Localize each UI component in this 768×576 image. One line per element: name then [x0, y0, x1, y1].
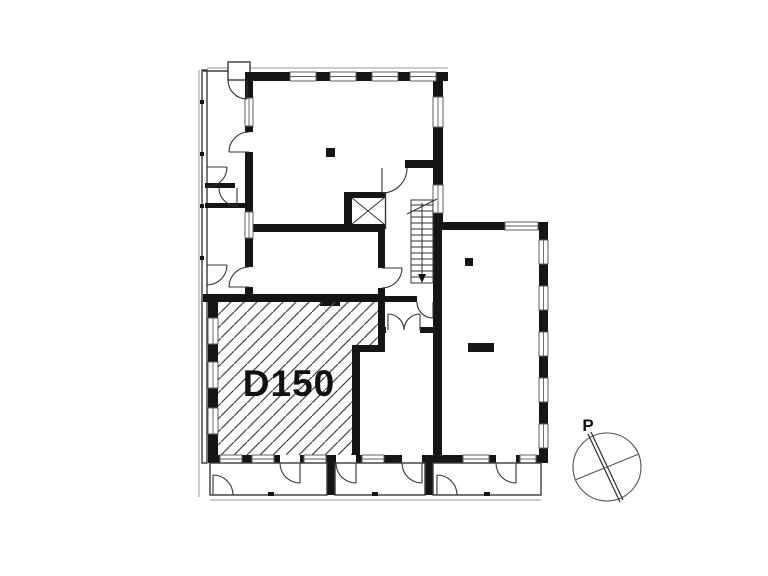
column-right-room	[465, 258, 473, 266]
floor-plan-page: D150	[0, 0, 768, 576]
furniture-marker	[468, 343, 494, 352]
room-label-d150: D150	[243, 363, 335, 404]
compass-cross-line	[575, 454, 639, 480]
balcony-middle	[335, 463, 425, 495]
compass: P	[573, 416, 641, 502]
column-upper-room	[326, 148, 335, 157]
floor-plan-drawing: D150	[0, 0, 768, 576]
balcony-left	[210, 463, 327, 495]
balconies	[210, 463, 541, 496]
north-label: P	[582, 416, 593, 435]
staircase	[407, 199, 437, 283]
